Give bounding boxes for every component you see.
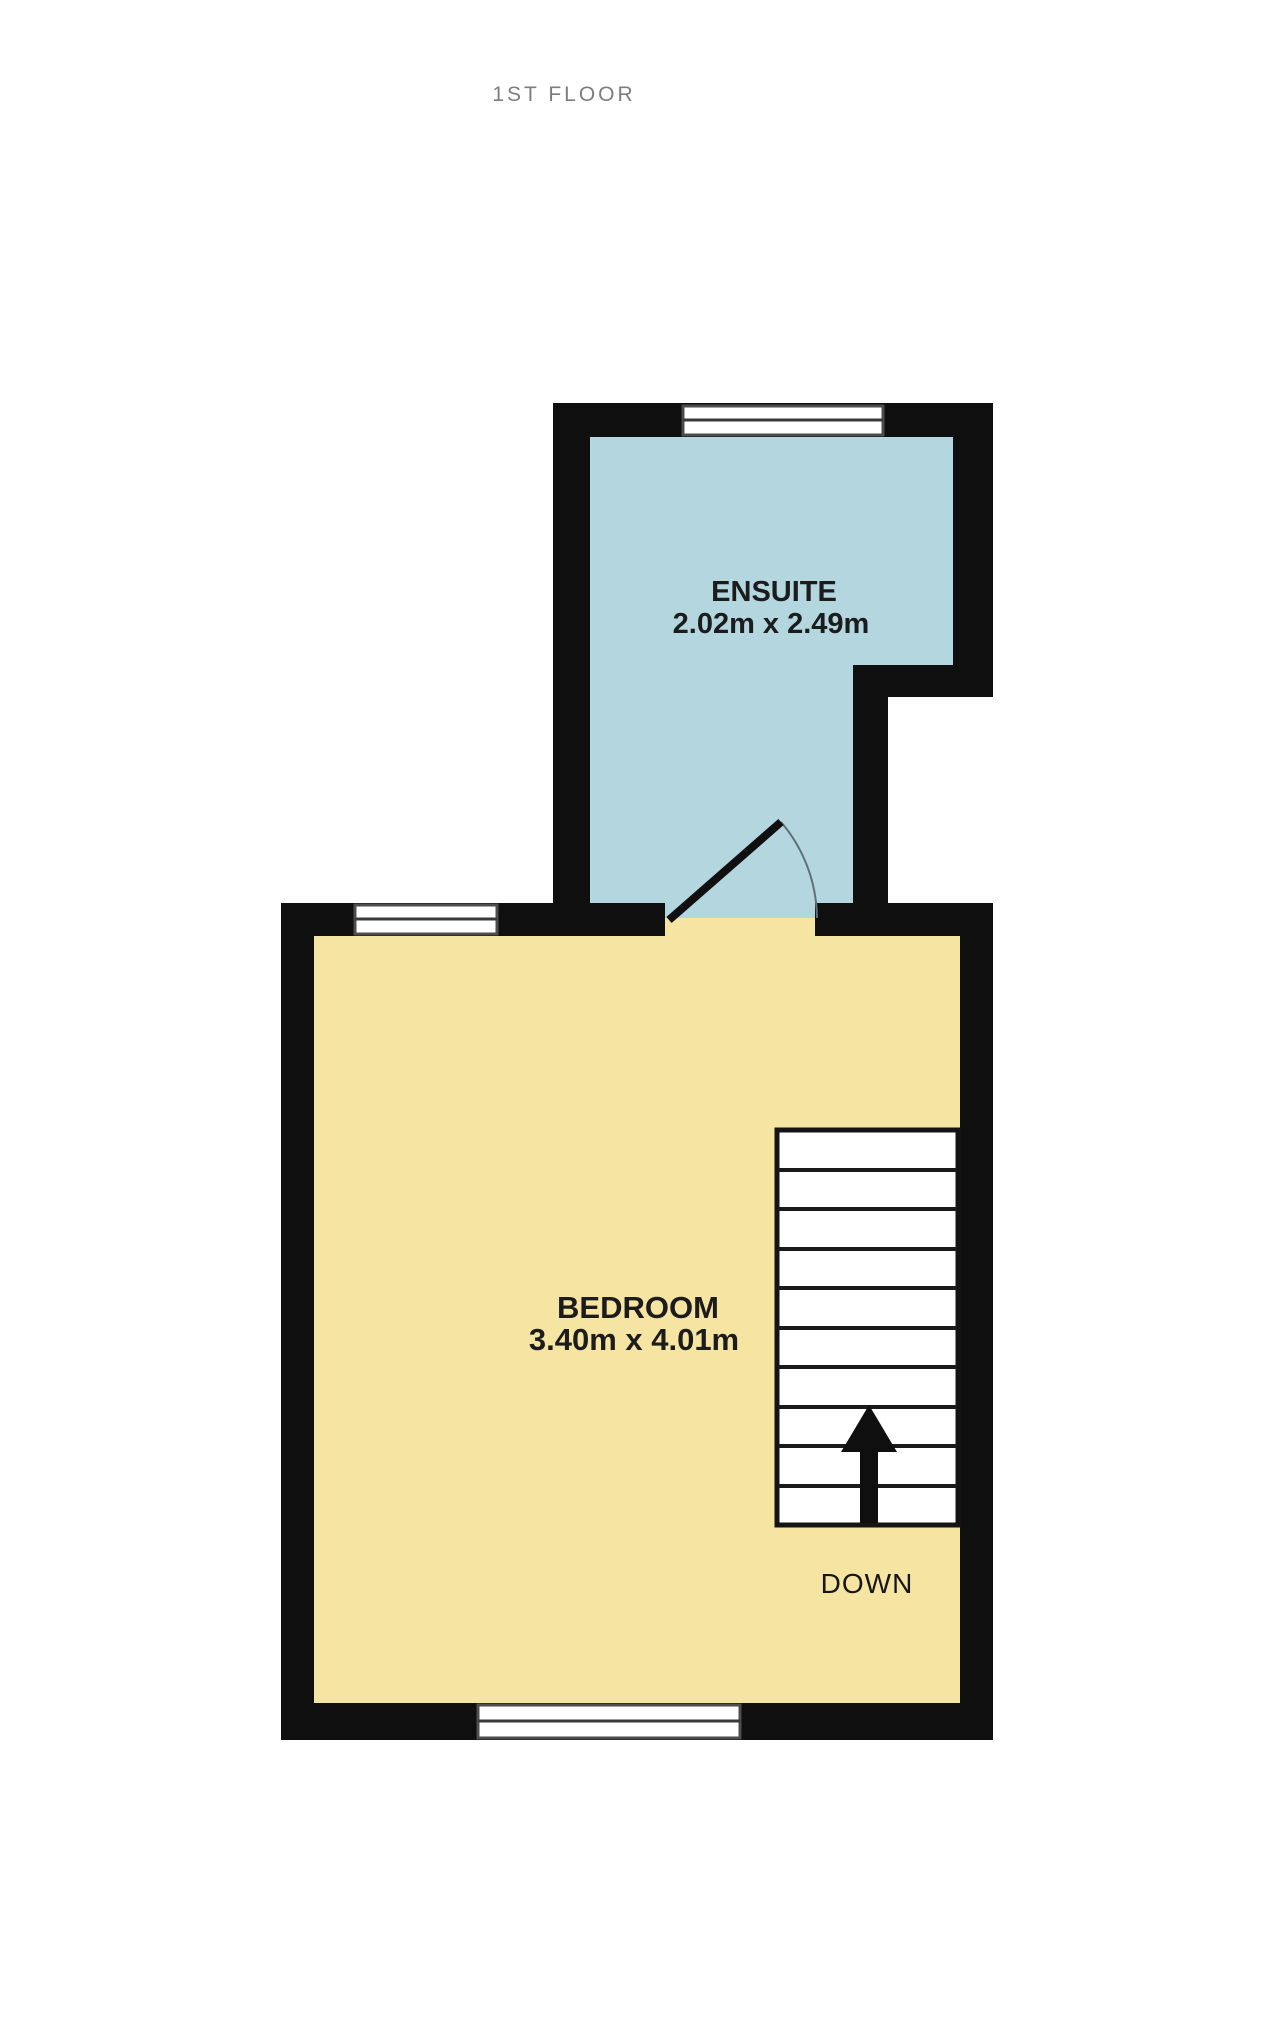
ensuite-room-dimensions: 2.02m x 2.49m [673,608,870,640]
floorplan-page: 1ST FLOOR ENSUITE 2.02m x 2.49m BEDROOM … [0,0,1280,2027]
stairs-down-label: DOWN [821,1568,914,1599]
bedroom-bottom-window [478,1705,740,1738]
floor-title: 1ST FLOOR [492,83,635,106]
bedroom-room-dimensions: 3.40m x 4.01m [529,1322,739,1357]
floorplan-drawing: 1ST FLOOR ENSUITE 2.02m x 2.49m BEDROOM … [0,0,1280,2027]
wall-ensuite-right-lower [853,665,888,936]
wall-bedroom-left [281,903,314,1740]
ensuite-window [683,406,883,435]
ensuite-room-label: ENSUITE [711,576,837,608]
bedroom-room-label: BEDROOM [557,1290,719,1325]
wall-ensuite-left [553,403,590,936]
stairs [777,1130,958,1525]
wall-bedroom-right [960,903,993,1740]
bedroom-top-window [355,905,497,934]
wall-ensuite-right-upper [953,403,993,697]
